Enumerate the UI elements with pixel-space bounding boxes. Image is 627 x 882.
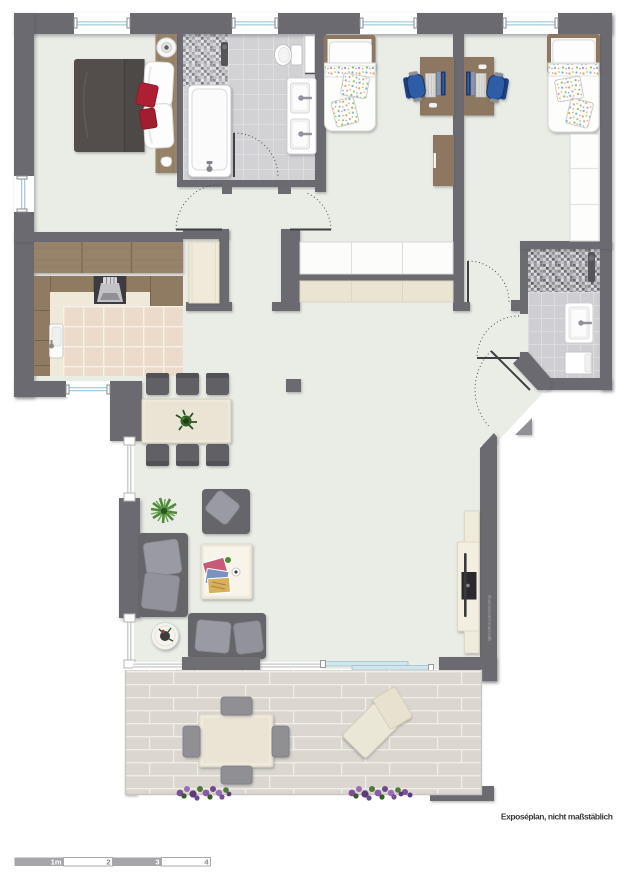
svg-text:IllustrationEmmaGrafik: IllustrationEmmaGrafik (487, 595, 492, 642)
svg-text:2: 2 (106, 858, 110, 867)
svg-text:Exposéplan, nicht maßstäblich: Exposéplan, nicht maßstäblich (501, 812, 613, 822)
svg-text:1m: 1m (51, 858, 62, 867)
svg-text:3: 3 (155, 858, 159, 867)
